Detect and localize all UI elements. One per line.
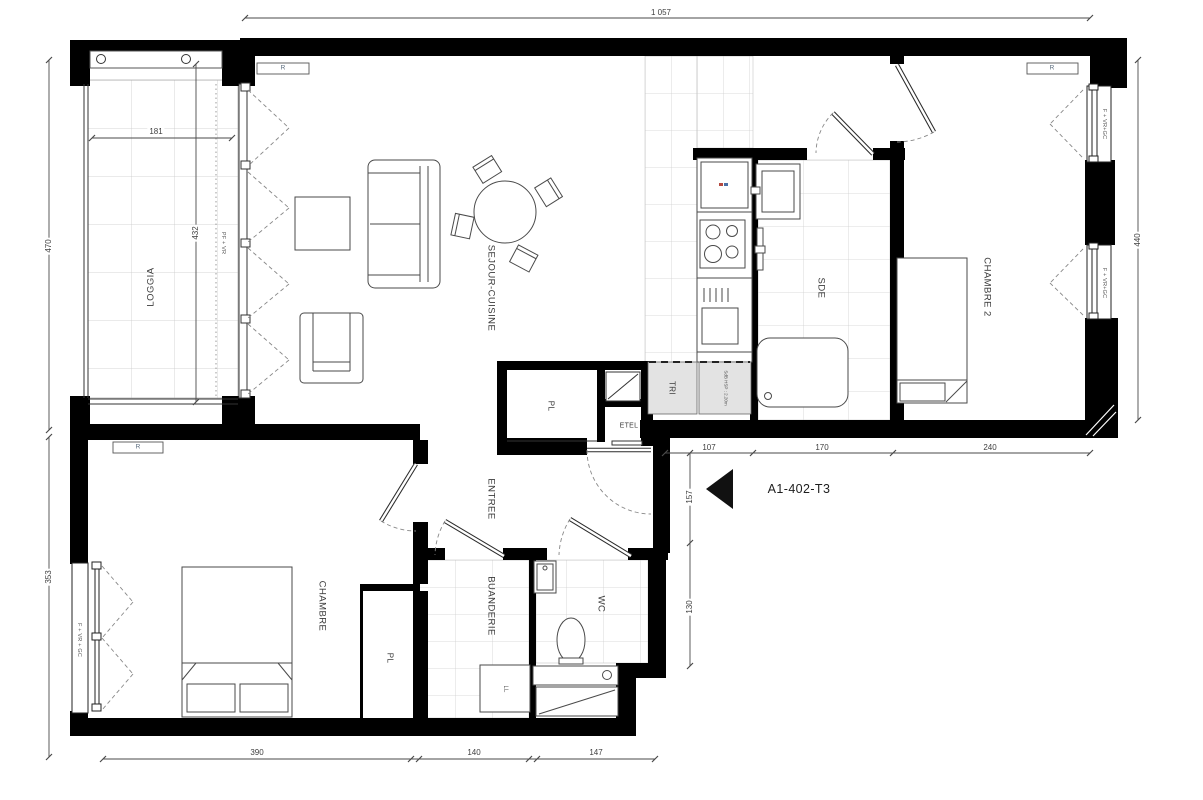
technical-boxes [648,362,751,414]
drain-circle [182,55,191,64]
water-point-cold [724,183,728,186]
room-label-chambre2: CHAMBRE 2 [982,257,993,316]
dim-loggia-w: 181 [147,128,164,136]
etel-duct [606,372,640,401]
wc-duct [536,687,618,716]
room-label-loggia: LOGGIA [146,267,157,306]
dining-chairs [451,156,563,272]
duct-note: SdB HSP : 2.20m [724,370,729,405]
window-chambre2-top [1087,84,1111,162]
coffee-table [295,197,350,250]
dim-loggia-h: 432 [192,224,200,241]
room-label-etel: ETEL [620,423,639,430]
etel-door [612,441,642,445]
radiator-label: R [281,65,286,72]
window-label-loggia: PF + VR [220,232,226,254]
bed-chambre [182,567,292,717]
wc-basin [534,561,556,593]
window-label-chambre-left: F + VR + GC [76,623,82,657]
dim-mid3: 240 [981,444,998,452]
window-chambre2-bottom [1087,243,1111,319]
dim-top: 1 057 [649,9,673,17]
bed-chambre2 [897,258,967,403]
room-label-chambre: CHAMBRE [317,581,328,632]
kitchen-counter [697,158,752,362]
plan-title: A1-402-T3 [768,482,831,496]
dim-mid2: 170 [813,444,830,452]
armchair [300,313,363,383]
wc-shelf [533,666,618,685]
radiator-label: R [136,444,141,451]
room-label-pl-chambre: PL [386,653,395,663]
dim-right: 440 [1134,231,1142,248]
dim-bot1: 390 [248,749,265,757]
room-label-tri: TRI [668,381,677,395]
dim-left-lower: 353 [45,568,53,585]
room-label-buanderie: BUANDERIE [486,576,497,635]
room-label-sde: SDE [816,278,827,299]
entree-details [507,372,642,445]
dim-mid1: 107 [700,444,717,452]
dim-bot3: 147 [587,749,604,757]
window-label-chambre2-bottom: F + VR+GC [1101,268,1107,299]
radiator-label: R [1050,65,1055,72]
orientation-triangle [706,469,733,509]
dim-v2: 130 [686,598,694,615]
room-label-sejour: SEJOUR-CUISINE [486,245,497,332]
dim-bot2: 140 [465,749,482,757]
room-label-wc: WC [596,596,607,613]
dim-left-upper: 470 [45,237,53,254]
drain-circle [97,55,106,64]
sofa [368,160,440,288]
shower-tray [757,338,848,407]
washer-label: LL [502,685,508,692]
water-point-hot [719,183,723,186]
plan-drawing [0,0,1203,800]
room-label-entree: ENTREE [486,478,497,519]
dining-table [474,181,536,243]
sejour-furniture [295,156,562,383]
window-label-chambre2-top: F + VR+GC [1101,109,1107,140]
room-label-pl-entree: PL [547,401,556,411]
washbasin [751,164,800,219]
cooktop [700,220,745,268]
floorplan: LOGGIA SEJOUR-CUISINE CHAMBRE 2 SDE CHAM… [0,0,1203,800]
dim-v1: 157 [686,488,694,505]
towel-radiator [755,228,765,270]
